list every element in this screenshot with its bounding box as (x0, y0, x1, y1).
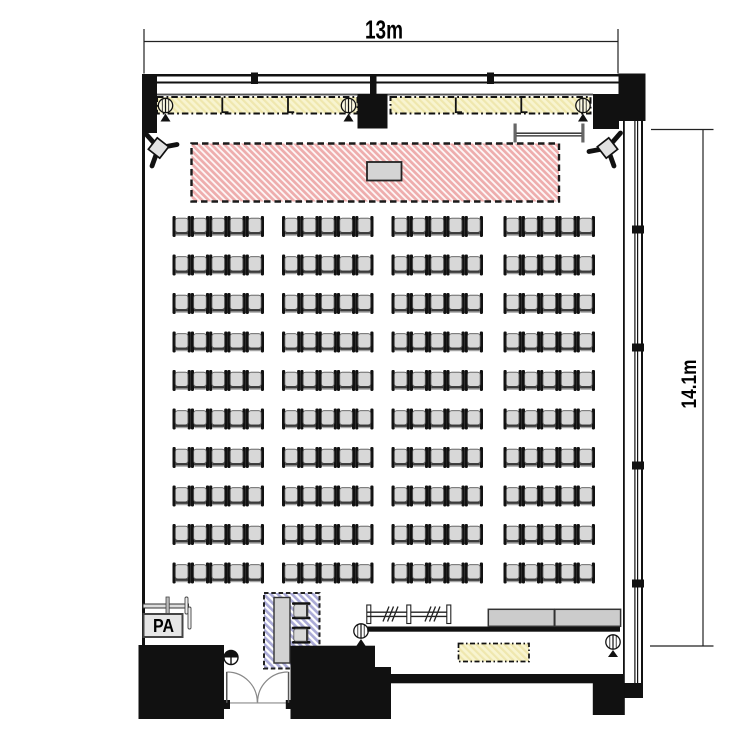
svg-text:PA: PA (153, 616, 174, 636)
svg-text:14.1m: 14.1m (677, 360, 701, 409)
svg-text:13m: 13m (365, 15, 403, 45)
